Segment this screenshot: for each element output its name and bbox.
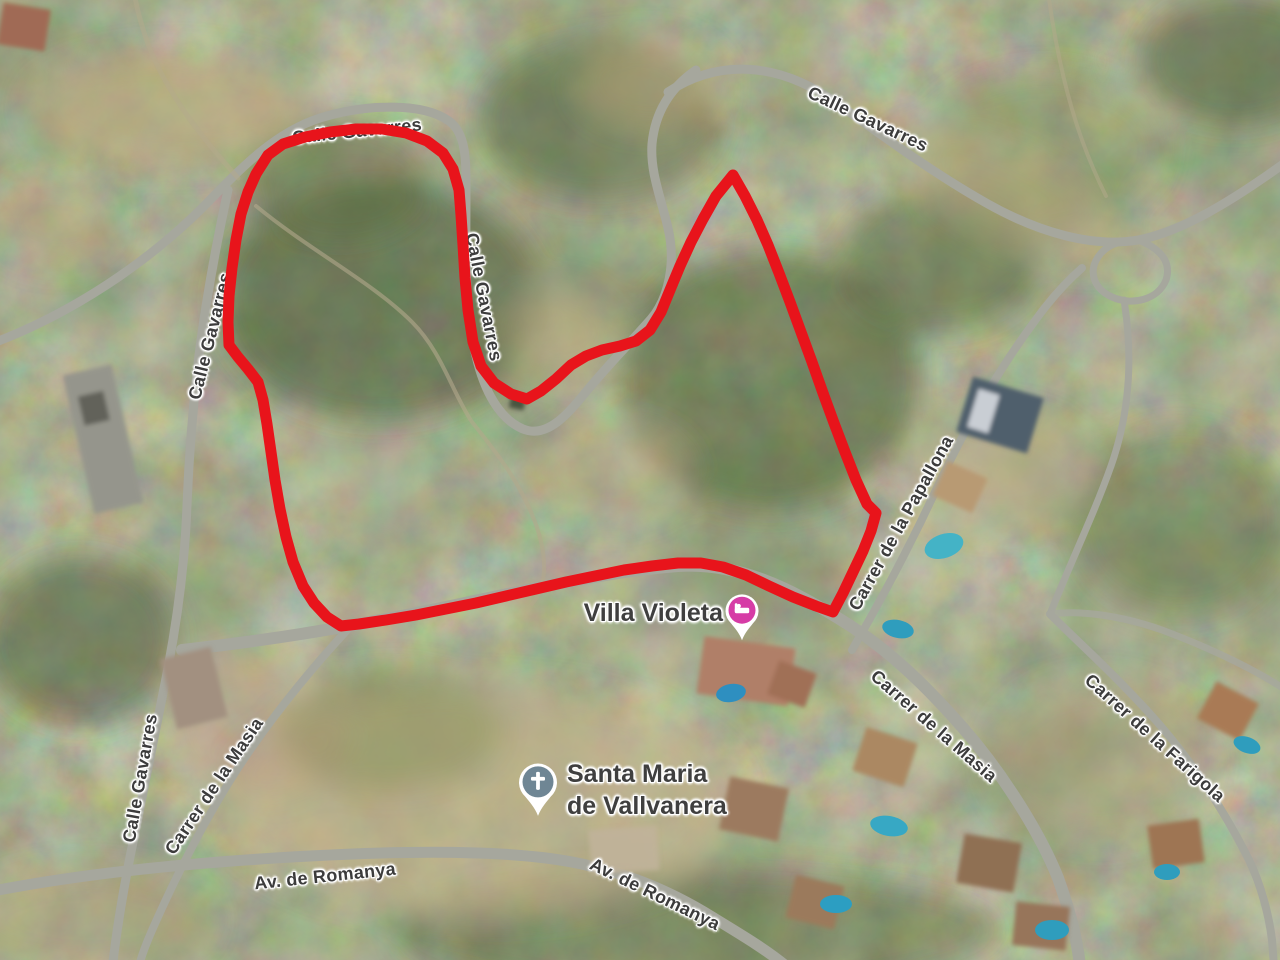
road-label-carrer-de-la-masia-right: Carrer de la Masia: [868, 667, 1001, 786]
labels-layer: Calle Gavarres Calle Gavarres Calle Gava…: [0, 0, 1280, 960]
place-label-villa-violeta[interactable]: Villa Violeta: [584, 597, 723, 629]
road-label-calle-gavarres-bottom-left: Calle Gavarres: [120, 712, 160, 843]
road-label-calle-gavarres-left: Calle Gavarres: [186, 271, 235, 402]
place-label-line2: de Vallvanera: [567, 790, 727, 822]
road-label-av-de-romanya-left: Av. de Romanya: [253, 860, 396, 893]
road-label-calle-gavarres-top-right: Calle Gavarres: [805, 83, 931, 154]
place-label-santa-maria[interactable]: Santa Maria de Vallvanera: [567, 758, 727, 822]
road-label-calle-gavarres-middle: Calle Gavarres: [463, 231, 506, 362]
map-canvas[interactable]: Calle Gavarres Calle Gavarres Calle Gava…: [0, 0, 1280, 960]
church-pin[interactable]: [514, 758, 562, 825]
road-label-av-de-romanya-right: Av. de Romanya: [587, 855, 723, 934]
road-label-carrer-de-la-papallona: Carrer de la Papallona: [845, 433, 956, 614]
road-label-carrer-de-la-masia-left: Carrer de la Masia: [162, 714, 267, 857]
lodging-pin[interactable]: [720, 588, 764, 649]
road-label-carrer-de-la-farigola: Carrer de la Farigola: [1082, 671, 1229, 806]
road-label-calle-gavarres-top-left: Calle Gavarres: [291, 115, 422, 147]
place-label-line1: Santa Maria: [567, 758, 727, 790]
